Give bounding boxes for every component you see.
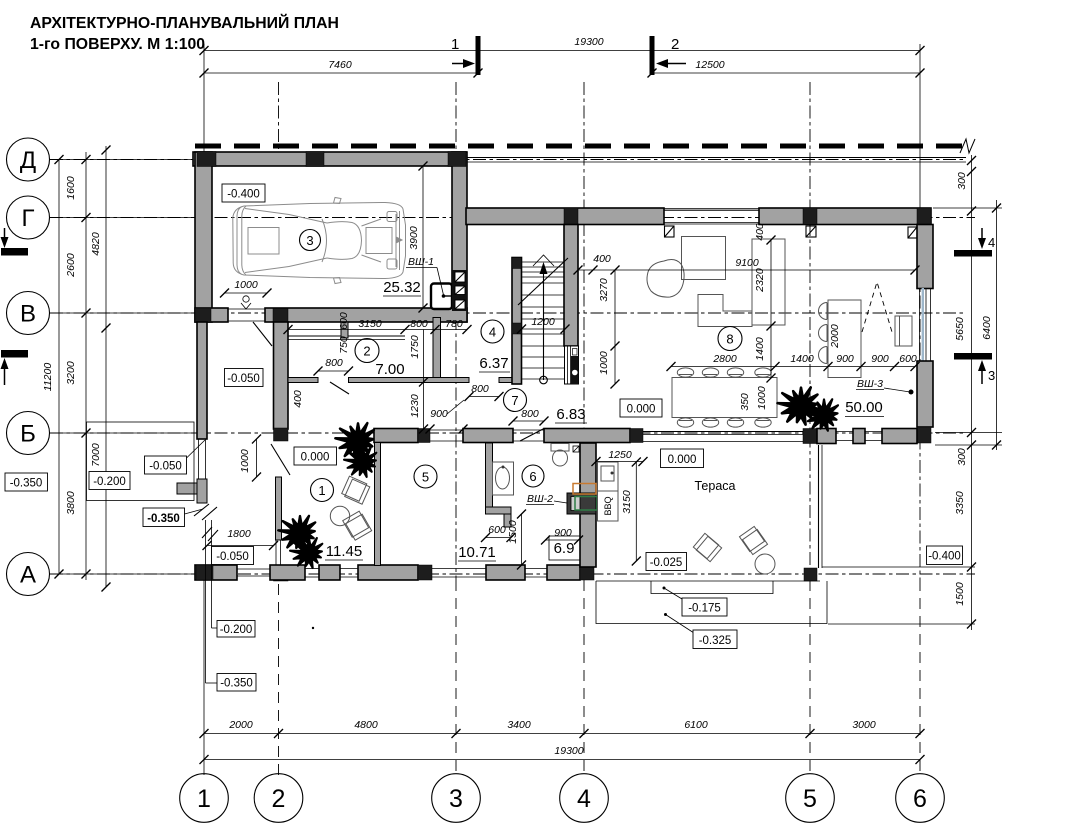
svg-text:3270: 3270 — [598, 278, 610, 302]
svg-text:1000: 1000 — [598, 351, 610, 375]
svg-text:0.000: 0.000 — [301, 452, 330, 464]
svg-text:1500: 1500 — [954, 582, 966, 606]
svg-text:1000: 1000 — [239, 449, 251, 473]
svg-text:350: 350 — [739, 393, 751, 411]
svg-text:3150: 3150 — [621, 490, 633, 514]
svg-text:4800: 4800 — [354, 719, 378, 731]
svg-text:800: 800 — [521, 408, 539, 420]
svg-text:А: А — [20, 562, 36, 589]
svg-text:3: 3 — [988, 368, 995, 383]
svg-text:6400: 6400 — [981, 316, 993, 340]
svg-text:1: 1 — [451, 36, 459, 53]
svg-text:BBQ: BBQ — [603, 496, 613, 515]
svg-text:11200: 11200 — [42, 363, 54, 392]
svg-text:7460: 7460 — [328, 59, 352, 71]
svg-text:3900: 3900 — [408, 226, 420, 250]
svg-text:-0.325: -0.325 — [699, 635, 732, 647]
svg-text:4: 4 — [577, 785, 591, 813]
svg-text:800: 800 — [471, 383, 489, 395]
svg-text:7.00: 7.00 — [375, 361, 404, 378]
svg-text:3800: 3800 — [65, 491, 77, 515]
svg-text:50.00: 50.00 — [845, 399, 883, 416]
svg-text:-0.050: -0.050 — [227, 373, 260, 385]
svg-text:4: 4 — [988, 235, 995, 250]
svg-text:6.37: 6.37 — [479, 355, 508, 372]
svg-text:ВШ-3: ВШ-3 — [857, 378, 883, 390]
svg-text:Б: Б — [20, 421, 36, 448]
svg-text:900: 900 — [836, 353, 854, 365]
svg-text:2: 2 — [671, 36, 679, 53]
svg-text:1-го ПОВЕРХУ. М 1:100: 1-го ПОВЕРХУ. М 1:100 — [30, 36, 205, 53]
svg-text:3150: 3150 — [358, 318, 382, 330]
svg-text:АРХІТЕКТУРНО-ПЛАНУВАЛЬНИЙ ПЛАН: АРХІТЕКТУРНО-ПЛАНУВАЛЬНИЙ ПЛАН — [30, 13, 339, 32]
svg-text:6100: 6100 — [684, 719, 708, 731]
svg-text:-0.050: -0.050 — [216, 551, 249, 563]
svg-text:ВШ-1: ВШ-1 — [408, 256, 434, 268]
svg-text:2320: 2320 — [754, 268, 766, 293]
svg-text:300: 300 — [956, 172, 968, 190]
svg-text:-0.200: -0.200 — [93, 476, 126, 488]
svg-text:3: 3 — [306, 233, 313, 248]
svg-text:1: 1 — [318, 483, 325, 498]
svg-text:3350: 3350 — [954, 491, 966, 515]
svg-text:25.32: 25.32 — [383, 279, 421, 296]
svg-text:0.000: 0.000 — [668, 454, 697, 466]
svg-text:-0.400: -0.400 — [227, 189, 260, 201]
svg-text:6.9: 6.9 — [554, 540, 575, 557]
svg-text:600: 600 — [899, 353, 917, 365]
svg-text:19300: 19300 — [574, 36, 603, 48]
svg-text:300: 300 — [956, 448, 968, 466]
svg-text:-0.350: -0.350 — [220, 678, 253, 690]
svg-text:780: 780 — [445, 318, 463, 330]
svg-text:1750: 1750 — [409, 335, 421, 359]
svg-text:750: 750 — [338, 336, 350, 354]
svg-text:-0.400: -0.400 — [928, 551, 961, 563]
svg-text:1400: 1400 — [754, 337, 766, 361]
svg-text:7: 7 — [511, 393, 518, 408]
svg-text:1230: 1230 — [409, 394, 421, 418]
svg-text:-0.350: -0.350 — [147, 513, 180, 525]
svg-text:1500: 1500 — [507, 520, 519, 544]
svg-text:2000: 2000 — [829, 324, 841, 349]
svg-text:3: 3 — [449, 785, 463, 813]
svg-text:Д: Д — [20, 147, 36, 174]
svg-text:Г: Г — [22, 205, 35, 232]
svg-text:5: 5 — [803, 785, 817, 813]
svg-text:900: 900 — [430, 408, 448, 420]
svg-text:6: 6 — [529, 469, 536, 484]
svg-text:800: 800 — [325, 357, 343, 369]
svg-text:6: 6 — [913, 785, 927, 813]
svg-text:10.71: 10.71 — [458, 544, 496, 561]
svg-text:3400: 3400 — [507, 719, 531, 731]
svg-text:19300: 19300 — [554, 745, 583, 757]
svg-text:400: 400 — [593, 253, 611, 265]
svg-text:5: 5 — [422, 470, 429, 485]
svg-text:12500: 12500 — [695, 59, 724, 71]
svg-text:900: 900 — [871, 353, 889, 365]
svg-text:6.83: 6.83 — [556, 406, 585, 423]
svg-text:1600: 1600 — [65, 176, 77, 200]
svg-text:0.000: 0.000 — [627, 404, 656, 416]
svg-text:1000: 1000 — [234, 279, 258, 291]
svg-text:-0.350: -0.350 — [10, 478, 43, 490]
svg-text:3000: 3000 — [852, 719, 876, 731]
svg-text:2: 2 — [363, 344, 370, 359]
svg-text:2800: 2800 — [712, 353, 737, 365]
svg-text:8: 8 — [726, 332, 733, 347]
svg-text:-0.050: -0.050 — [149, 461, 182, 473]
svg-text:-0.025: -0.025 — [650, 557, 683, 569]
svg-text:2: 2 — [272, 785, 286, 813]
svg-text:1000: 1000 — [756, 386, 768, 410]
svg-text:-0.175: -0.175 — [688, 603, 721, 615]
svg-text:400: 400 — [754, 223, 766, 241]
svg-text:1400: 1400 — [790, 353, 814, 365]
svg-text:-0.200: -0.200 — [220, 624, 253, 636]
svg-text:Тераса: Тераса — [695, 479, 736, 493]
svg-text:900: 900 — [554, 527, 572, 539]
svg-text:4: 4 — [489, 325, 496, 340]
svg-text:ВШ-2: ВШ-2 — [527, 493, 553, 505]
svg-text:400: 400 — [292, 390, 304, 408]
svg-text:1: 1 — [197, 785, 211, 813]
svg-text:5650: 5650 — [954, 317, 966, 341]
svg-text:В: В — [20, 301, 36, 328]
svg-text:1200: 1200 — [531, 316, 555, 328]
svg-text:7000: 7000 — [90, 443, 102, 467]
svg-text:1800: 1800 — [227, 528, 251, 540]
svg-text:3200: 3200 — [65, 361, 77, 385]
svg-text:600: 600 — [338, 312, 350, 330]
svg-text:2000: 2000 — [228, 719, 253, 731]
svg-text:600: 600 — [488, 524, 506, 536]
svg-text:11.45: 11.45 — [326, 543, 362, 560]
svg-text:1250: 1250 — [608, 449, 632, 461]
svg-text:9100: 9100 — [735, 257, 759, 269]
svg-text:4820: 4820 — [90, 232, 102, 256]
svg-text:800: 800 — [410, 318, 428, 330]
svg-text:2600: 2600 — [65, 253, 77, 278]
